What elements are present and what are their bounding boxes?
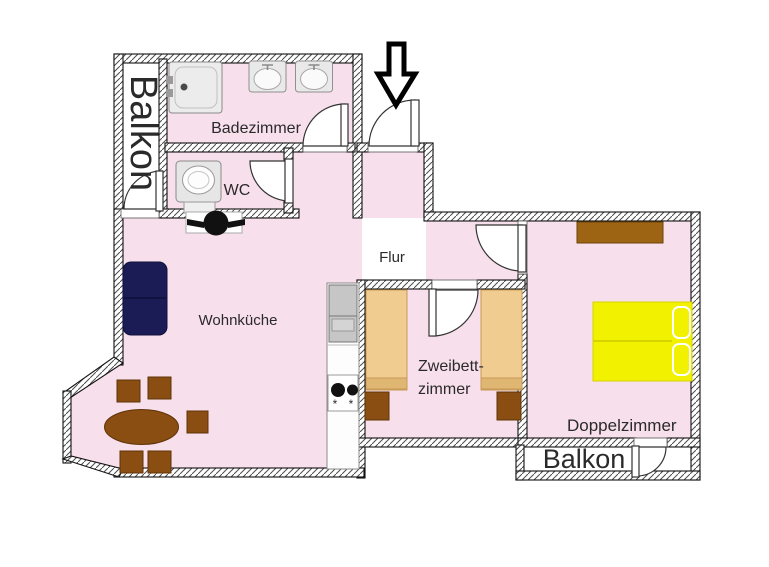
bed-foot-strip	[481, 378, 522, 389]
wc-door-leaf	[285, 159, 293, 203]
fridge	[329, 285, 357, 342]
room-label-wohnkueche: Wohnküche	[199, 312, 278, 329]
chair	[148, 451, 171, 473]
entrance-arrow-icon	[378, 44, 415, 105]
wall	[424, 212, 700, 221]
entrance-door-leaf	[411, 100, 419, 146]
floor-plan-canvas: * * Balkon Badezimmer WC Flur Wohnküche …	[0, 0, 769, 567]
wardrobe	[577, 222, 663, 243]
wall	[357, 280, 432, 289]
flur-corridor-floor	[360, 146, 426, 218]
shower-drain-icon	[181, 84, 188, 91]
nightstand	[497, 392, 521, 420]
sink-basin	[254, 69, 281, 90]
wall	[114, 209, 123, 365]
room-label-badezimmer: Badezimmer	[211, 120, 301, 137]
wall	[284, 148, 293, 160]
chair	[117, 380, 140, 402]
room-label-flur: Flur	[379, 249, 405, 266]
room-label-zweibett-line2: zimmer	[418, 381, 471, 398]
bathroom-door-leaf	[341, 104, 348, 146]
chair	[187, 411, 208, 433]
wall	[165, 143, 303, 152]
fan-hub	[204, 211, 229, 236]
single-bed	[366, 290, 407, 390]
toilet-bowl	[183, 166, 215, 194]
wall	[353, 54, 362, 218]
chair	[148, 377, 171, 399]
shower-faucet-icon	[166, 76, 173, 84]
wall	[667, 438, 700, 447]
twinroom-door-leaf	[429, 289, 436, 336]
wall	[477, 280, 525, 289]
chair	[120, 451, 143, 473]
dining-table	[105, 410, 179, 445]
room-label-wc: WC	[224, 182, 251, 199]
room-label-zweibett-line1: Zweibett-	[418, 358, 484, 375]
room-label-balkon-bottom: Balkon	[543, 444, 626, 474]
wall	[424, 143, 433, 216]
doubleroom-door-leaf	[518, 225, 526, 272]
balcony-bottom-door-leaf	[632, 446, 639, 477]
twinroom-door-threshold	[432, 280, 477, 289]
nightstand	[365, 392, 389, 420]
wall	[63, 391, 71, 463]
room-label-balkon-left: Balkon	[122, 75, 164, 191]
stove-burner	[331, 383, 345, 397]
toilet-base	[184, 202, 215, 213]
entrance-door-swing	[369, 100, 415, 146]
fridge-drawer	[332, 319, 354, 331]
room-label-doppelzimmer: Doppelzimmer	[567, 416, 677, 435]
sink-basin	[301, 69, 328, 90]
shower-faucet-icon	[166, 89, 173, 97]
pillow	[673, 307, 690, 338]
pillow	[673, 344, 690, 375]
floor-plan-page: * * Balkon Badezimmer WC Flur Wohnküche …	[0, 0, 769, 567]
stove-knob-mark: *	[349, 397, 354, 411]
wall	[357, 143, 369, 152]
stove-burner	[347, 385, 358, 396]
wall	[114, 54, 123, 214]
stove-knob-mark: *	[333, 397, 338, 411]
ceiling-fan-icon	[186, 211, 245, 236]
bed-foot-strip	[366, 378, 407, 389]
single-bed	[481, 290, 522, 390]
balcony-left-door-threshold	[121, 209, 159, 218]
wall	[357, 438, 525, 447]
